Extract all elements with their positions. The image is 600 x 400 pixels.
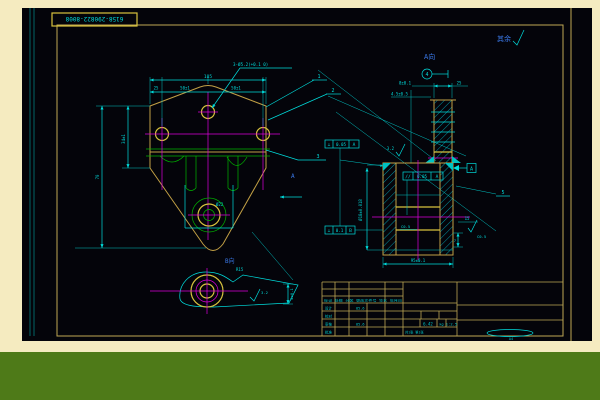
drawing-canvas [22, 8, 592, 341]
drawing-number: 6158-290822-8008 [65, 15, 123, 22]
fcf-perp-top-datum: A [353, 142, 356, 148]
cad-drawing: 6158-290822-8008 其余 A向 [0, 0, 600, 400]
dim-right-top: 15 [465, 216, 470, 221]
dim-seg-mid: 50±1 [180, 86, 190, 91]
fcf-perp-bottom-tol: 0.1 [336, 228, 344, 233]
dim-right-step: 7 [454, 238, 456, 243]
title-row-value: 85.6 [356, 307, 364, 311]
dim-depth: 4±0.1 [289, 288, 294, 300]
dim-top-right: 25 [457, 81, 462, 86]
balloon-3: 3 [316, 154, 319, 160]
dim-side-height: 34±1 [121, 134, 126, 144]
view-b-label: B向 [225, 257, 235, 265]
chamfer-1: C0.5 [401, 224, 410, 229]
fcf-perp-bottom-datum: B [349, 228, 352, 234]
dim-bottom-width: 95±0.1 [411, 258, 426, 263]
title-row-label: 校对 [325, 314, 333, 319]
bottom-green-bar [0, 352, 600, 400]
balloon-1: 1 [317, 74, 320, 80]
surface-note-label: 其余 [497, 34, 511, 43]
dim-seg-right: 50±1 [231, 86, 241, 91]
weight-value: 6.42 [423, 322, 433, 327]
weight-unit: kg [439, 323, 443, 327]
dim-top-left: 4.5±0.5 [391, 92, 408, 97]
dim-overall-width: 105 [204, 74, 212, 80]
fcf-perp-top-symbol: ⊥ [328, 143, 331, 148]
title-row-label: 设计 [325, 306, 333, 311]
dim-height: 70 [95, 174, 100, 179]
cad-viewport: 6158-290822-8008 其余 A向 [0, 0, 600, 400]
balloon-2: 2 [331, 88, 334, 94]
balloon-5: 5 [501, 190, 504, 196]
fcf-parallel-symbol: // [405, 174, 411, 180]
detail-roughness: 3.2 [261, 290, 268, 295]
view-a-label: A向 [424, 52, 435, 61]
dim-top-width: 8±0.1 [399, 81, 412, 86]
title-row-value: 85.6 [356, 323, 364, 327]
fcf-perp-bottom-symbol: ⊥ [328, 229, 331, 234]
roughness-top: 3.2 [387, 146, 395, 151]
chamfer-2: C0.5 [477, 234, 486, 239]
scale-value: 1:2.5 [446, 322, 457, 327]
paper-size: A4 [509, 337, 513, 341]
boss-dim: Ø22 [216, 202, 224, 207]
revision-header: 标记 处数 分区 更改文件号 签名 年月日 [324, 299, 402, 303]
sheet-note: 共1张 第1张 [405, 330, 424, 335]
datum-a: A [470, 167, 473, 173]
radius-label: R15 [236, 267, 244, 272]
fcf-parallel-datum: A [436, 174, 439, 180]
dim-seg-left: 25 [154, 86, 159, 91]
title-row-label: 批准 [325, 330, 333, 335]
bore-dim: Ø18±0.018 [358, 199, 363, 221]
section-arrow-label: A [291, 173, 295, 180]
fcf-parallel-tol: 0.05 [417, 174, 428, 179]
title-row-label: 审核 [325, 322, 333, 327]
hole-callout-text: 3-Ø5.2(+0.1 0) [233, 62, 268, 67]
balloon-4: 4 [425, 72, 428, 78]
fcf-perp-top-tol: 0.05 [336, 142, 347, 147]
